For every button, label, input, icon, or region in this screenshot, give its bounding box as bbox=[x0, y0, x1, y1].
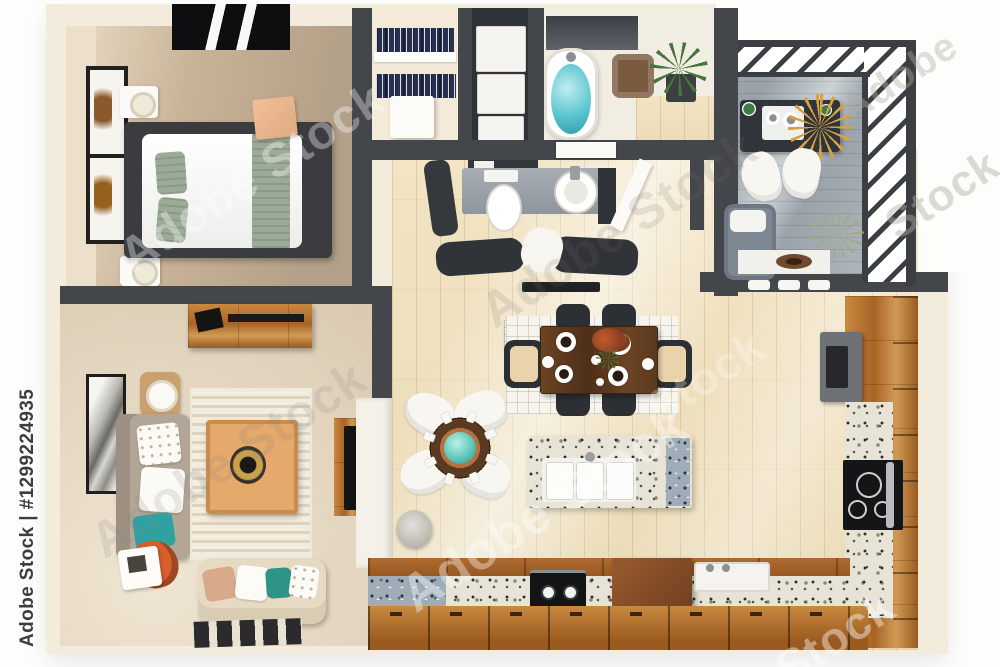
oven-handle bbox=[886, 462, 894, 528]
small-dish bbox=[642, 358, 654, 370]
sofa-pillow bbox=[234, 564, 269, 601]
washer-unit bbox=[476, 26, 526, 72]
bathtub-water bbox=[551, 64, 591, 134]
island-basin bbox=[606, 462, 634, 500]
bed-pillow bbox=[155, 197, 189, 243]
stove-knob bbox=[563, 585, 578, 600]
wall-art-frame bbox=[86, 154, 128, 244]
wall-laundry-bath bbox=[528, 8, 544, 158]
laundry-drawer bbox=[478, 116, 524, 142]
folded-chair bbox=[808, 280, 830, 290]
place-setting bbox=[555, 365, 573, 383]
armchair-cushion bbox=[510, 346, 538, 382]
closet-dresser bbox=[390, 96, 434, 138]
pergola-frame-right bbox=[906, 40, 916, 286]
bar-counter-box bbox=[612, 558, 692, 610]
hanging-clothes-rack bbox=[376, 74, 456, 98]
dryer-unit bbox=[477, 74, 525, 114]
dining-armchair bbox=[652, 340, 692, 388]
island-faucet bbox=[585, 452, 595, 462]
bathroom-chair bbox=[612, 54, 654, 98]
hand-towel bbox=[474, 161, 494, 168]
sink-faucet bbox=[570, 166, 580, 180]
stove-knob bbox=[541, 585, 556, 600]
wall-bath2-right bbox=[690, 152, 704, 230]
pergola-frame-inner-top bbox=[738, 72, 870, 77]
wall-closet-row-bottom bbox=[352, 140, 732, 160]
hanging-clothes-rack bbox=[376, 28, 454, 52]
tub-faucet bbox=[566, 52, 576, 62]
pergola-frame-top bbox=[738, 40, 916, 47]
island-basin bbox=[546, 462, 574, 500]
tray-cup bbox=[766, 111, 780, 125]
centerpiece-succulent bbox=[596, 348, 620, 370]
magazine bbox=[127, 555, 147, 573]
stock-id-watermark: Adobe Stock | #1299224935 bbox=[12, 372, 44, 664]
table-lamp bbox=[130, 92, 156, 118]
wall-hallway-stub bbox=[372, 286, 392, 406]
sofa-pillow-tan bbox=[201, 565, 238, 602]
toilet-tank bbox=[484, 170, 518, 182]
open-sky-right bbox=[912, 0, 1000, 272]
partition-wall-white bbox=[356, 398, 392, 568]
botanical-art bbox=[94, 80, 112, 138]
small-dish bbox=[596, 378, 604, 386]
drawer-handles bbox=[368, 612, 868, 616]
sofa-pillow bbox=[288, 564, 320, 600]
lounge-pillow bbox=[730, 210, 766, 232]
cooktop-burner bbox=[856, 472, 882, 498]
botanical-art bbox=[94, 166, 112, 224]
sink-faucet bbox=[706, 564, 714, 572]
sofa-pillow bbox=[136, 422, 182, 466]
wall-bedroom-bottom bbox=[60, 286, 392, 304]
pergola-frame-inner-right bbox=[862, 74, 868, 282]
stool bbox=[396, 510, 432, 548]
small-dish bbox=[542, 356, 554, 368]
table-lamp bbox=[146, 380, 178, 412]
decor-bowl bbox=[230, 446, 266, 484]
hall-bench bbox=[435, 237, 525, 277]
skylight-window bbox=[172, 4, 290, 50]
toilet-bowl bbox=[486, 184, 522, 232]
microwave-door bbox=[826, 346, 848, 388]
closet-shelf bbox=[374, 52, 456, 62]
table-lamp bbox=[132, 260, 158, 286]
cooktop-burner bbox=[848, 500, 867, 519]
dining-armchair bbox=[504, 340, 544, 388]
mirror-panel bbox=[556, 142, 616, 158]
potted-plant bbox=[650, 42, 708, 96]
desk-monitor-strip bbox=[228, 314, 304, 322]
game-table-center-teal bbox=[444, 432, 476, 464]
place-setting bbox=[556, 332, 576, 352]
folded-chair bbox=[748, 280, 770, 290]
floor-plan-render: Adobe Stock Adobe Stock Adobe Stock Adob… bbox=[0, 0, 1000, 667]
bed-bench-peach bbox=[252, 96, 298, 140]
island-end-strip bbox=[666, 438, 690, 506]
bed-pillow bbox=[155, 151, 188, 195]
vent-hood bbox=[546, 16, 638, 50]
folded-chair bbox=[778, 280, 800, 290]
accent-rug-dark bbox=[194, 618, 303, 648]
sofa-pillow bbox=[139, 467, 186, 514]
bed-throw-runner bbox=[252, 134, 290, 248]
island-basin bbox=[576, 462, 604, 500]
wall-closet-laundry bbox=[458, 8, 472, 158]
ceiling-light-bar bbox=[522, 282, 600, 292]
counter-granite bbox=[845, 402, 893, 462]
counter-granite-dark-end bbox=[368, 576, 446, 610]
pergola-slats-right bbox=[864, 46, 912, 282]
sink-faucet bbox=[722, 564, 730, 572]
hall-bench bbox=[551, 236, 639, 276]
wood-bowl bbox=[776, 254, 812, 269]
armchair-cushion bbox=[658, 346, 686, 382]
mini-plant bbox=[742, 102, 756, 116]
